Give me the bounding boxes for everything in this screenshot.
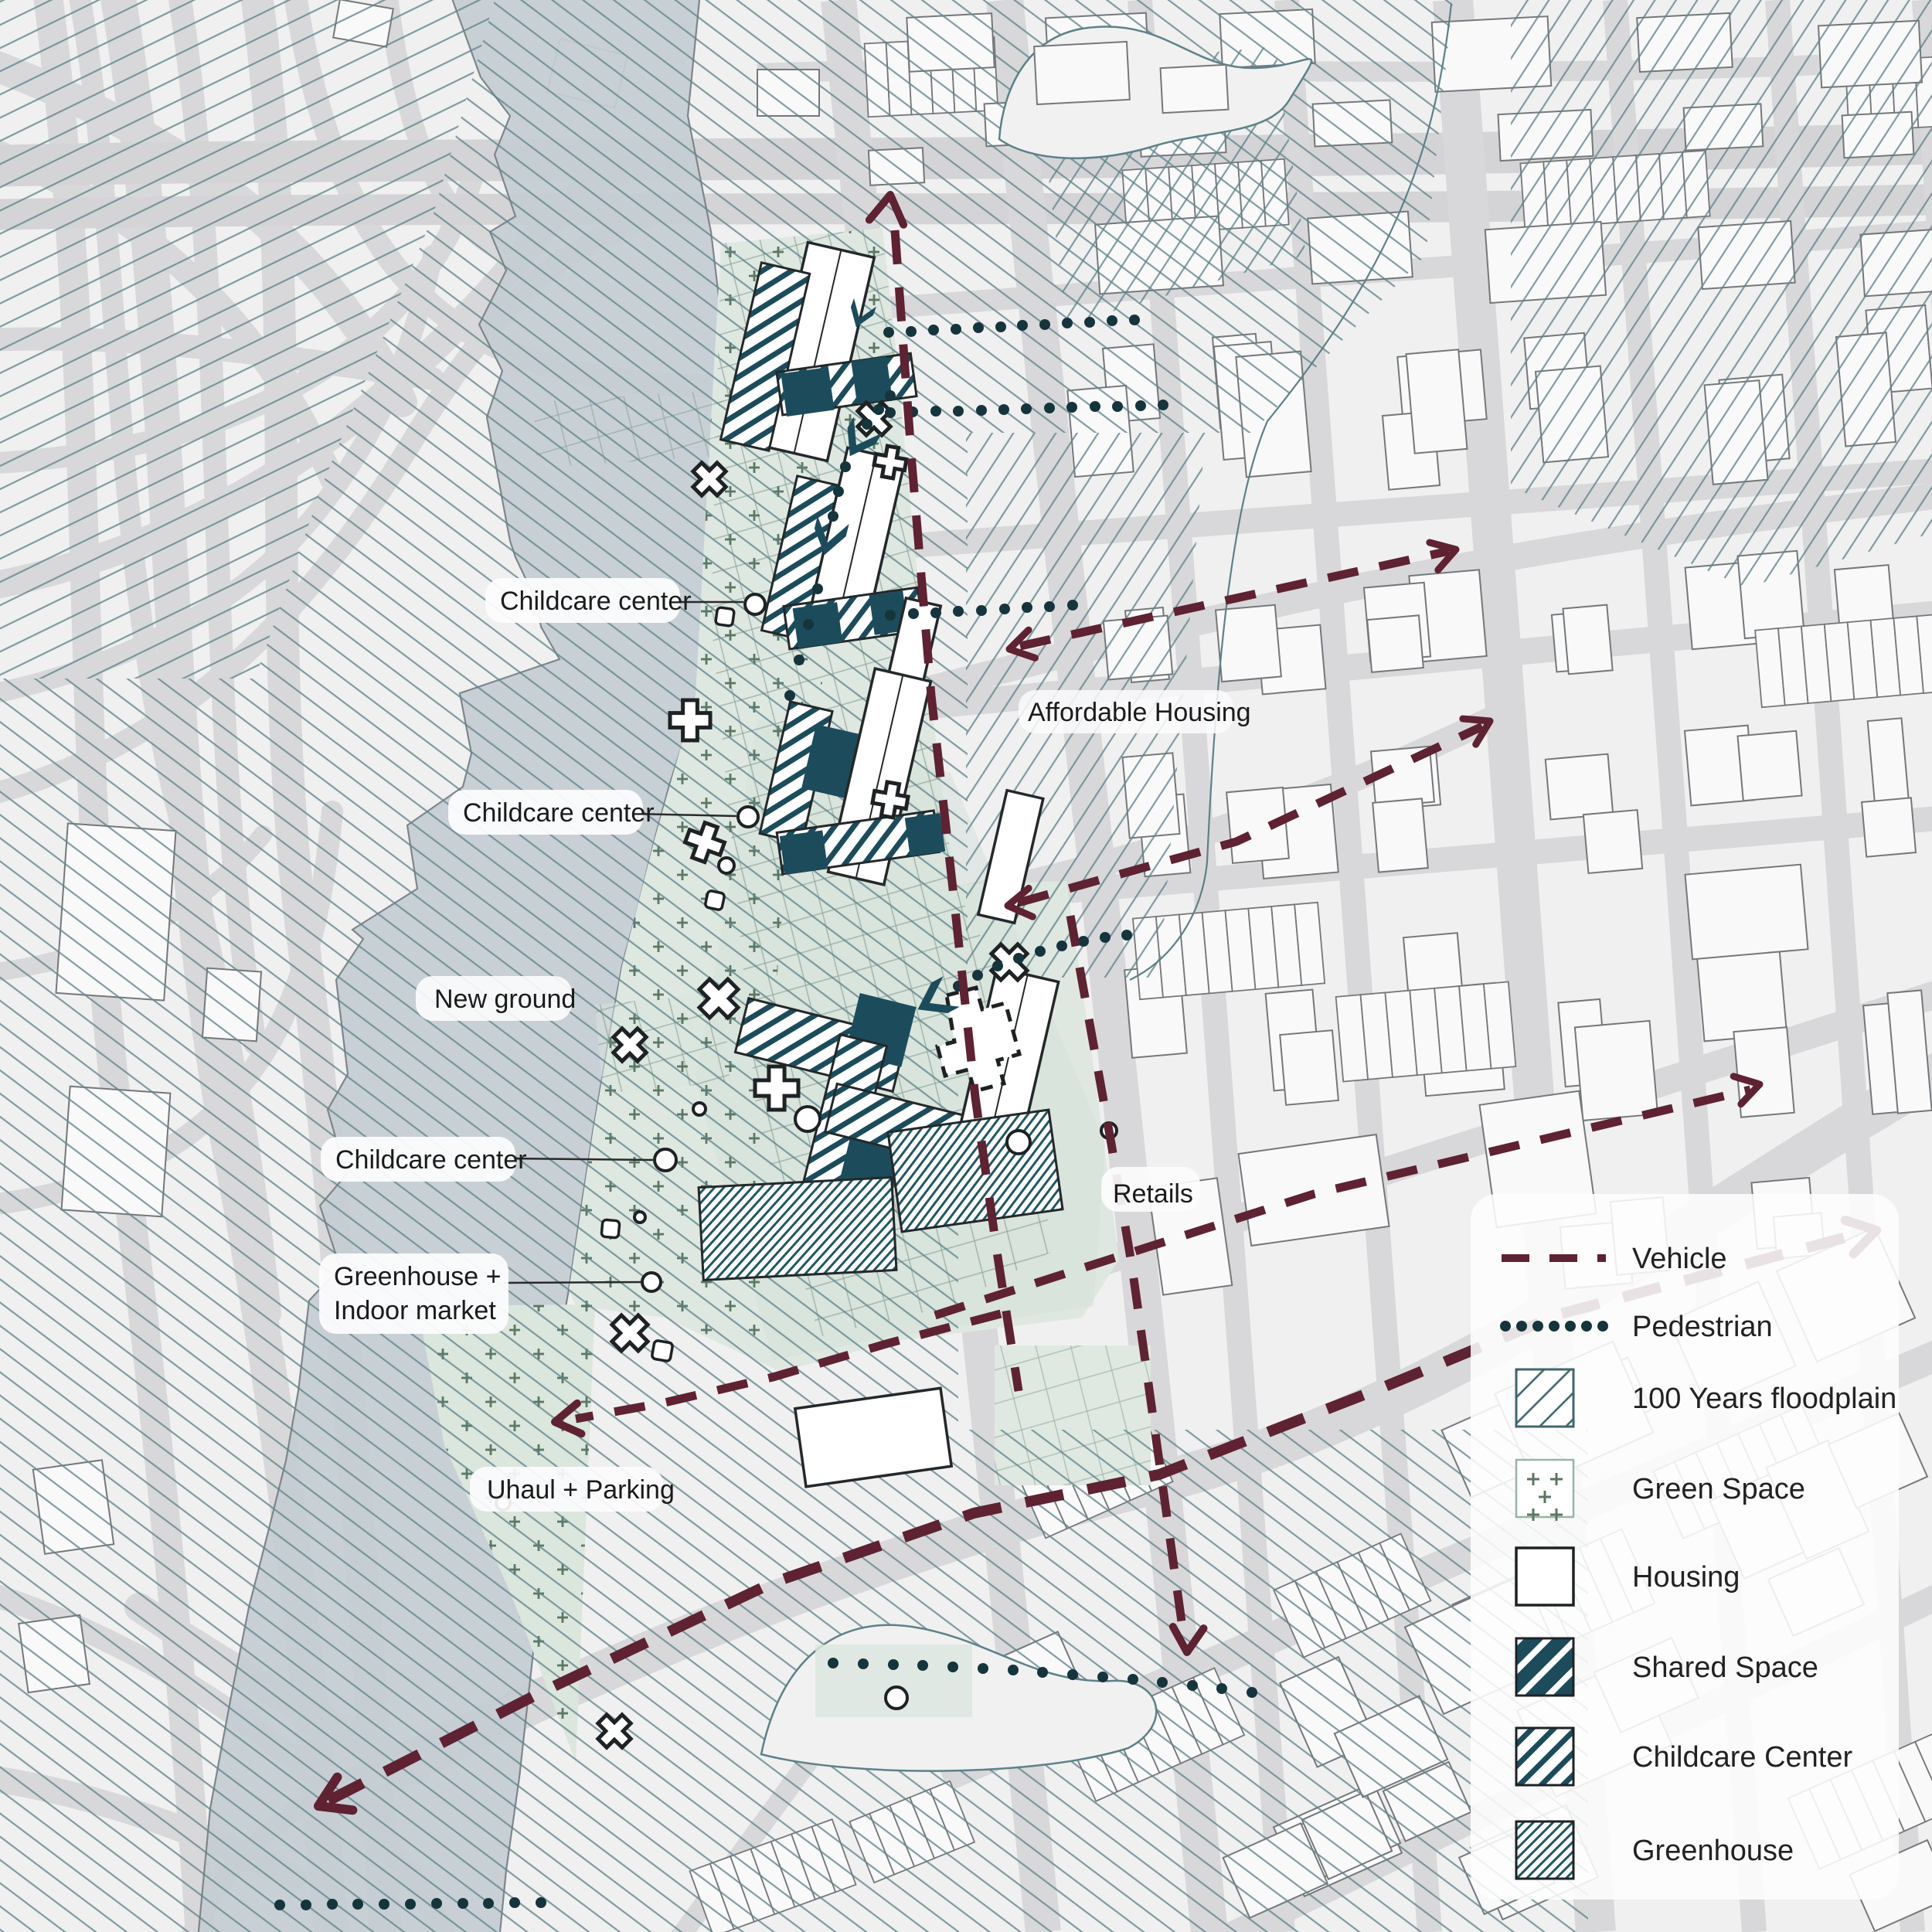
svg-text:Greenhouse +: Greenhouse +: [334, 1262, 501, 1291]
svg-text:Vehicle: Vehicle: [1632, 1243, 1727, 1275]
svg-text:Pedestrian: Pedestrian: [1632, 1311, 1773, 1343]
svg-text:Childcare center: Childcare center: [500, 587, 692, 616]
svg-text:Green Space: Green Space: [1632, 1473, 1805, 1505]
svg-text:Housing: Housing: [1632, 1561, 1740, 1594]
svg-text:Uhaul + Parking: Uhaul + Parking: [487, 1475, 675, 1505]
svg-text:Childcare center: Childcare center: [335, 1145, 527, 1175]
svg-text:Greenhouse: Greenhouse: [1632, 1835, 1794, 1867]
svg-text:Childcare center: Childcare center: [463, 798, 655, 828]
svg-text:Affordable Housing: Affordable Housing: [1028, 698, 1251, 727]
svg-text:Childcare Center: Childcare Center: [1632, 1741, 1852, 1774]
svg-text:Retails: Retails: [1113, 1179, 1193, 1209]
svg-text:100 Years floodplain: 100 Years floodplain: [1632, 1383, 1896, 1415]
svg-text:Shared Space: Shared Space: [1632, 1651, 1818, 1684]
svg-text:New ground: New ground: [434, 985, 576, 1014]
svg-text:Indoor market: Indoor market: [334, 1296, 496, 1325]
